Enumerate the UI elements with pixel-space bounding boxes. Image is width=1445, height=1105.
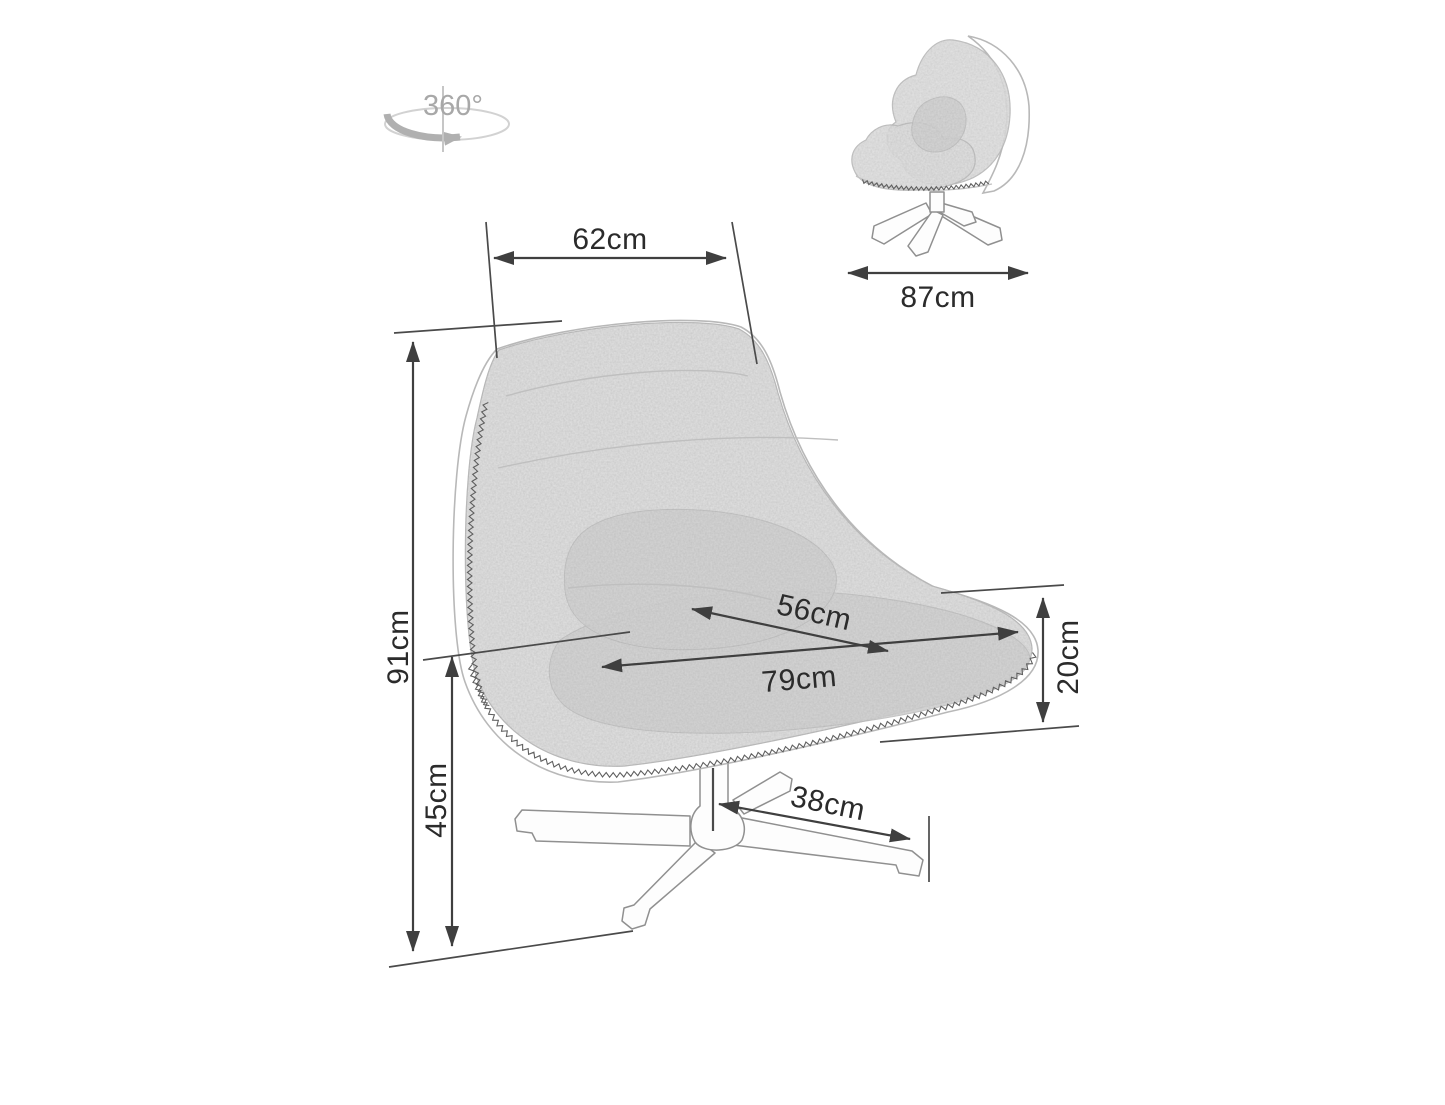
base-leg-right (733, 817, 923, 876)
extension-line (486, 222, 497, 358)
product-dimension-diagram: 360° (0, 0, 1445, 1105)
diagram-canvas: 360° (0, 0, 1445, 1105)
dim-cushion-thickness-label: 20cm (1052, 619, 1085, 694)
dim-total-height-label: 91cm (382, 609, 415, 684)
main-chair-illustration (453, 320, 1038, 929)
side-base-post (930, 192, 944, 212)
extension-line (941, 585, 1064, 593)
side-view-illustration (852, 36, 1029, 256)
rotation-360-label: 360° (423, 90, 483, 122)
extension-line (394, 321, 562, 333)
base-leg-left (515, 810, 690, 846)
extension-line (880, 726, 1079, 742)
dim-side-depth-label: 87cm (900, 281, 975, 314)
dim-seat-height-label: 45cm (420, 762, 453, 837)
extension-line (389, 931, 633, 967)
dimension-side-depth: 87cm (848, 273, 1028, 314)
rotation-360-icon: 360° (385, 86, 509, 152)
dim-top-width-label: 62cm (572, 223, 647, 256)
dim-seat-width-label: 79cm (760, 660, 838, 699)
base-leg-front (622, 840, 715, 929)
dim-base-leg-label: 38cm (788, 780, 868, 827)
